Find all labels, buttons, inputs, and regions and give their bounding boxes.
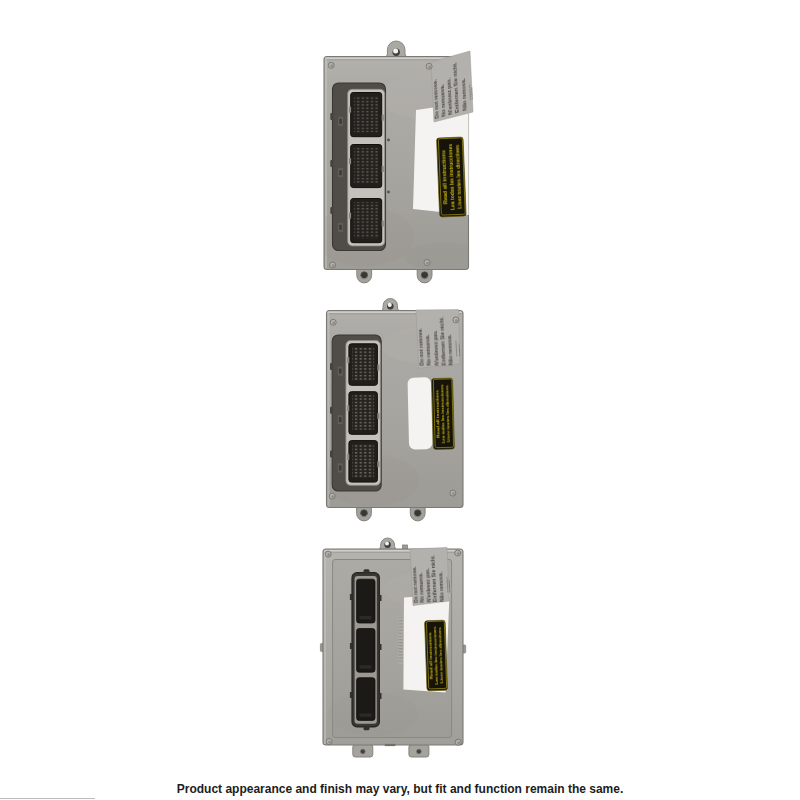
svg-text:Reconstruido: Reconstruido <box>470 86 473 100</box>
